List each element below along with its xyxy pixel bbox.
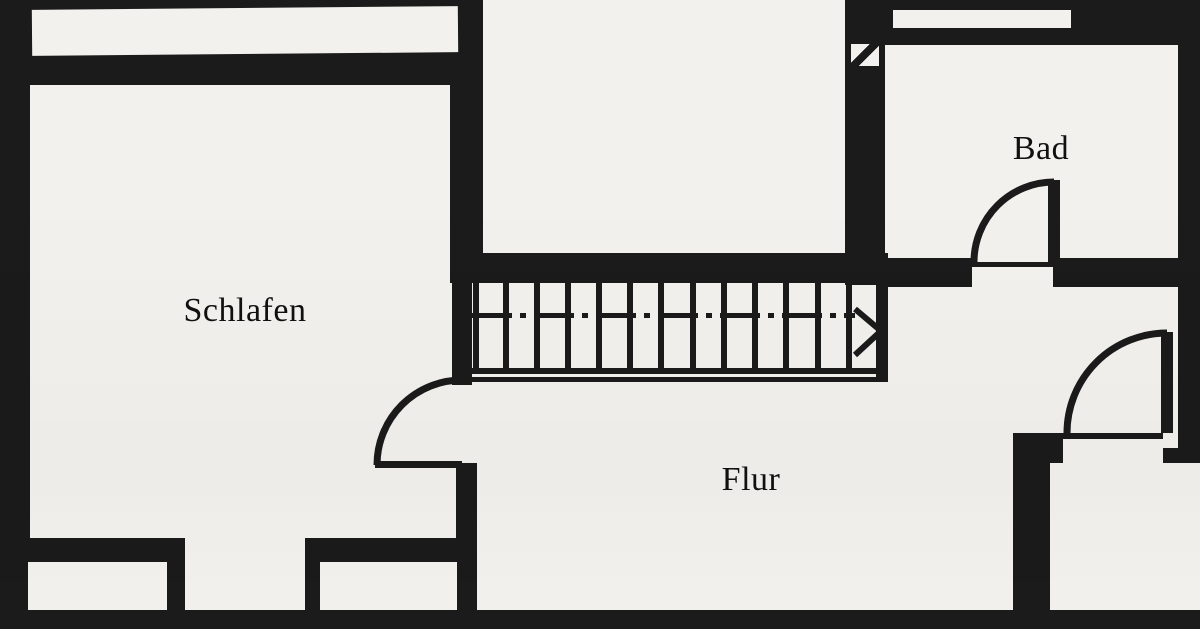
right-door-threshold: [1063, 433, 1163, 439]
stair-bottom-line-inner: [455, 377, 888, 382]
right-door-leaf: [1161, 332, 1173, 433]
wall-right-return-stub: [1163, 448, 1200, 463]
window-bottom-2: [320, 562, 457, 610]
wall-middle-bad: [845, 0, 885, 285]
floor-plan: Schlafen Flur Bad: [0, 0, 1200, 629]
stair-tread: [596, 283, 602, 370]
stair-tread: [473, 283, 479, 370]
stair-tread: [503, 283, 509, 370]
window-bottom-1: [28, 562, 167, 614]
stair-tread: [721, 283, 727, 370]
bad-door-swing-arc: [974, 182, 1054, 262]
stair-stringer-right: [876, 283, 888, 380]
wall-bad-bottom-right: [1053, 258, 1200, 287]
stair-tread: [752, 283, 758, 370]
wall-middle-room-bottom: [452, 253, 888, 283]
stair-stringer-left: [458, 283, 470, 378]
right-room-door-swing-arc: [1067, 333, 1167, 433]
wall-right-exterior: [1178, 0, 1200, 463]
opening-bottom: [185, 538, 305, 621]
wall-bad-bottom-left: [885, 258, 972, 287]
wall-left-exterior: [0, 0, 30, 629]
stair-walking-line: [472, 313, 855, 318]
stair-tread: [534, 283, 540, 370]
stair-tread: [690, 283, 696, 370]
stair-tread: [627, 283, 633, 370]
room-label-flur: Flur: [722, 461, 781, 499]
schlafen-door-swing-arc: [377, 380, 462, 465]
stair-tread: [783, 283, 789, 370]
schlafen-door-leaf: [375, 461, 462, 468]
stair-tread: [846, 283, 852, 370]
stair-tread: [658, 283, 664, 370]
bad-door-threshold: [972, 262, 1053, 267]
room-label-schlafen: Schlafen: [184, 292, 307, 330]
stair-bottom-line-outer: [455, 368, 888, 374]
stair-tread: [815, 283, 821, 370]
bad-door-leaf: [1048, 180, 1060, 262]
wall-right-door-jamb: [1013, 433, 1063, 463]
flue-vent-symbol: [851, 44, 879, 66]
stair-tread: [565, 283, 571, 370]
window-bad-top: [893, 10, 1071, 28]
room-label-bad: Bad: [1013, 130, 1069, 168]
window-top-left: [32, 6, 458, 56]
